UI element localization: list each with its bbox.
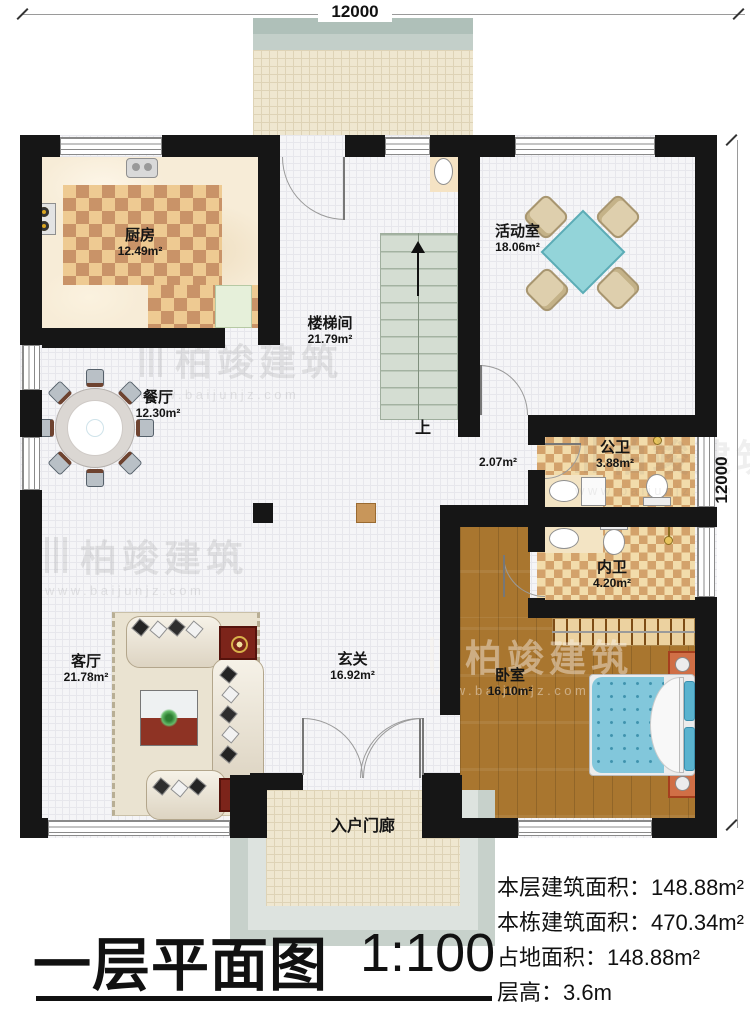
kitchen-sink: [126, 158, 158, 178]
sofa-bottom: [146, 770, 226, 820]
dining-chair: [86, 469, 104, 487]
wall: [20, 818, 48, 838]
inner-bath-light: [664, 536, 673, 545]
dimension-tick: [725, 134, 737, 146]
dining-chair: [136, 419, 154, 437]
kitchen-sink-faucet2: [144, 163, 152, 171]
table-lamp: [675, 657, 690, 672]
public-bath-toilet-tank: [643, 497, 671, 506]
public-bath-shower-tray: [581, 477, 606, 506]
scale-label: 1:100: [360, 922, 495, 984]
window: [518, 820, 652, 836]
window: [22, 345, 40, 390]
window: [48, 820, 230, 836]
room-label-stairwell: 楼梯间 21.79m²: [270, 316, 390, 346]
wall: [20, 390, 42, 437]
door-leaf: [302, 718, 304, 775]
room-label-dining: 餐厅 12.30m²: [113, 390, 203, 420]
dimension-right-value: 12000: [712, 450, 732, 510]
dimension-line-right: [737, 140, 738, 828]
hall-washbasin: [434, 158, 453, 185]
stat-floor-height: 层高：3.6m: [497, 975, 744, 1010]
door-leaf: [503, 555, 505, 597]
inner-bath-washbasin: [549, 528, 579, 549]
wall: [695, 597, 717, 838]
wall: [422, 818, 518, 838]
dining-chair: [86, 369, 104, 387]
bed-pillow: [684, 727, 695, 771]
stat-building-area: 本栋建筑面积：470.34m²: [497, 905, 744, 940]
wall-kitchen-bottom: [42, 328, 225, 348]
room-label-public-bath: 公卫 3.88m²: [575, 440, 655, 470]
coffee-table-plant: [160, 709, 178, 727]
wall: [345, 135, 385, 157]
door-leaf: [343, 157, 345, 220]
public-bath-toilet-bowl: [646, 474, 668, 499]
stairs-arrow-stem: [417, 252, 419, 296]
page-title: 一层平面图: [33, 918, 328, 1002]
room-label-activity: 活动室 18.06m²: [455, 224, 580, 254]
wall-inner-bath-bottom: [528, 600, 717, 618]
room-label-entry: 玄关 16.92m²: [310, 652, 395, 682]
stairs: [380, 233, 458, 420]
wall-public-bath-left: [528, 470, 545, 507]
dimension-top-value: 12000: [318, 2, 392, 22]
title-underline: [36, 996, 492, 1001]
inner-bath-toilet-bowl: [603, 529, 625, 555]
wall-kitchen-right: [258, 135, 280, 345]
window: [697, 527, 715, 597]
wardrobe-rail: [552, 631, 695, 633]
stat-land-area: 占地面积：148.88m²: [497, 940, 744, 975]
dining-table-center: [86, 419, 104, 437]
side-table-ornament: [231, 636, 248, 653]
door-leaf: [422, 718, 424, 775]
floor-plan: 柏竣建筑 www.baijunjz.com 柏竣建筑 www.baijunjz.…: [0, 0, 750, 1019]
bed-pillow: [684, 681, 695, 721]
wall-stairs-right: [458, 140, 480, 437]
window: [60, 137, 162, 155]
wall: [250, 773, 303, 790]
room-label-bedroom: 卧室 16.10m²: [455, 668, 565, 698]
room-label-corridor: 2.07m²: [458, 456, 538, 469]
room-label-porch: 入户门廊: [293, 818, 433, 836]
top-terrace-step: [253, 34, 473, 50]
wall: [695, 135, 717, 427]
door-leaf: [480, 365, 482, 415]
public-bath-washbasin: [549, 480, 579, 502]
wall-bath-divider: [528, 507, 717, 527]
room-label-inner-bath: 内卫 4.20m²: [572, 560, 652, 590]
sofa-right: [212, 658, 264, 786]
stairs-arrow-head: [411, 241, 425, 253]
stairs-up-label: 上: [408, 420, 438, 438]
kitchen-sink-faucet: [132, 163, 140, 171]
room-label-living: 客厅 21.78m²: [38, 654, 134, 684]
wall-public-bath-left: [528, 437, 545, 445]
wall-inner-bath-left: [528, 527, 545, 552]
kitchen-mat: [215, 285, 252, 328]
wall-activity-bottom: [528, 415, 717, 437]
table-lamp: [675, 776, 690, 791]
pillar: [253, 503, 273, 523]
room-label-kitchen: 厨房 12.49m²: [80, 228, 200, 258]
wall: [20, 135, 42, 345]
window: [22, 437, 40, 490]
stat-floor-area: 本层建筑面积：148.88m²: [497, 870, 744, 905]
window: [385, 137, 430, 155]
dimension-tick: [725, 819, 737, 831]
stats-block: 本层建筑面积：148.88m² 本栋建筑面积：470.34m² 占地面积：148…: [497, 870, 744, 1010]
pillar-wood: [356, 503, 376, 523]
wall-bedroom-left: [440, 778, 460, 792]
side-table-top: [219, 626, 257, 660]
top-terrace-floor: [253, 50, 473, 137]
window: [515, 137, 655, 155]
